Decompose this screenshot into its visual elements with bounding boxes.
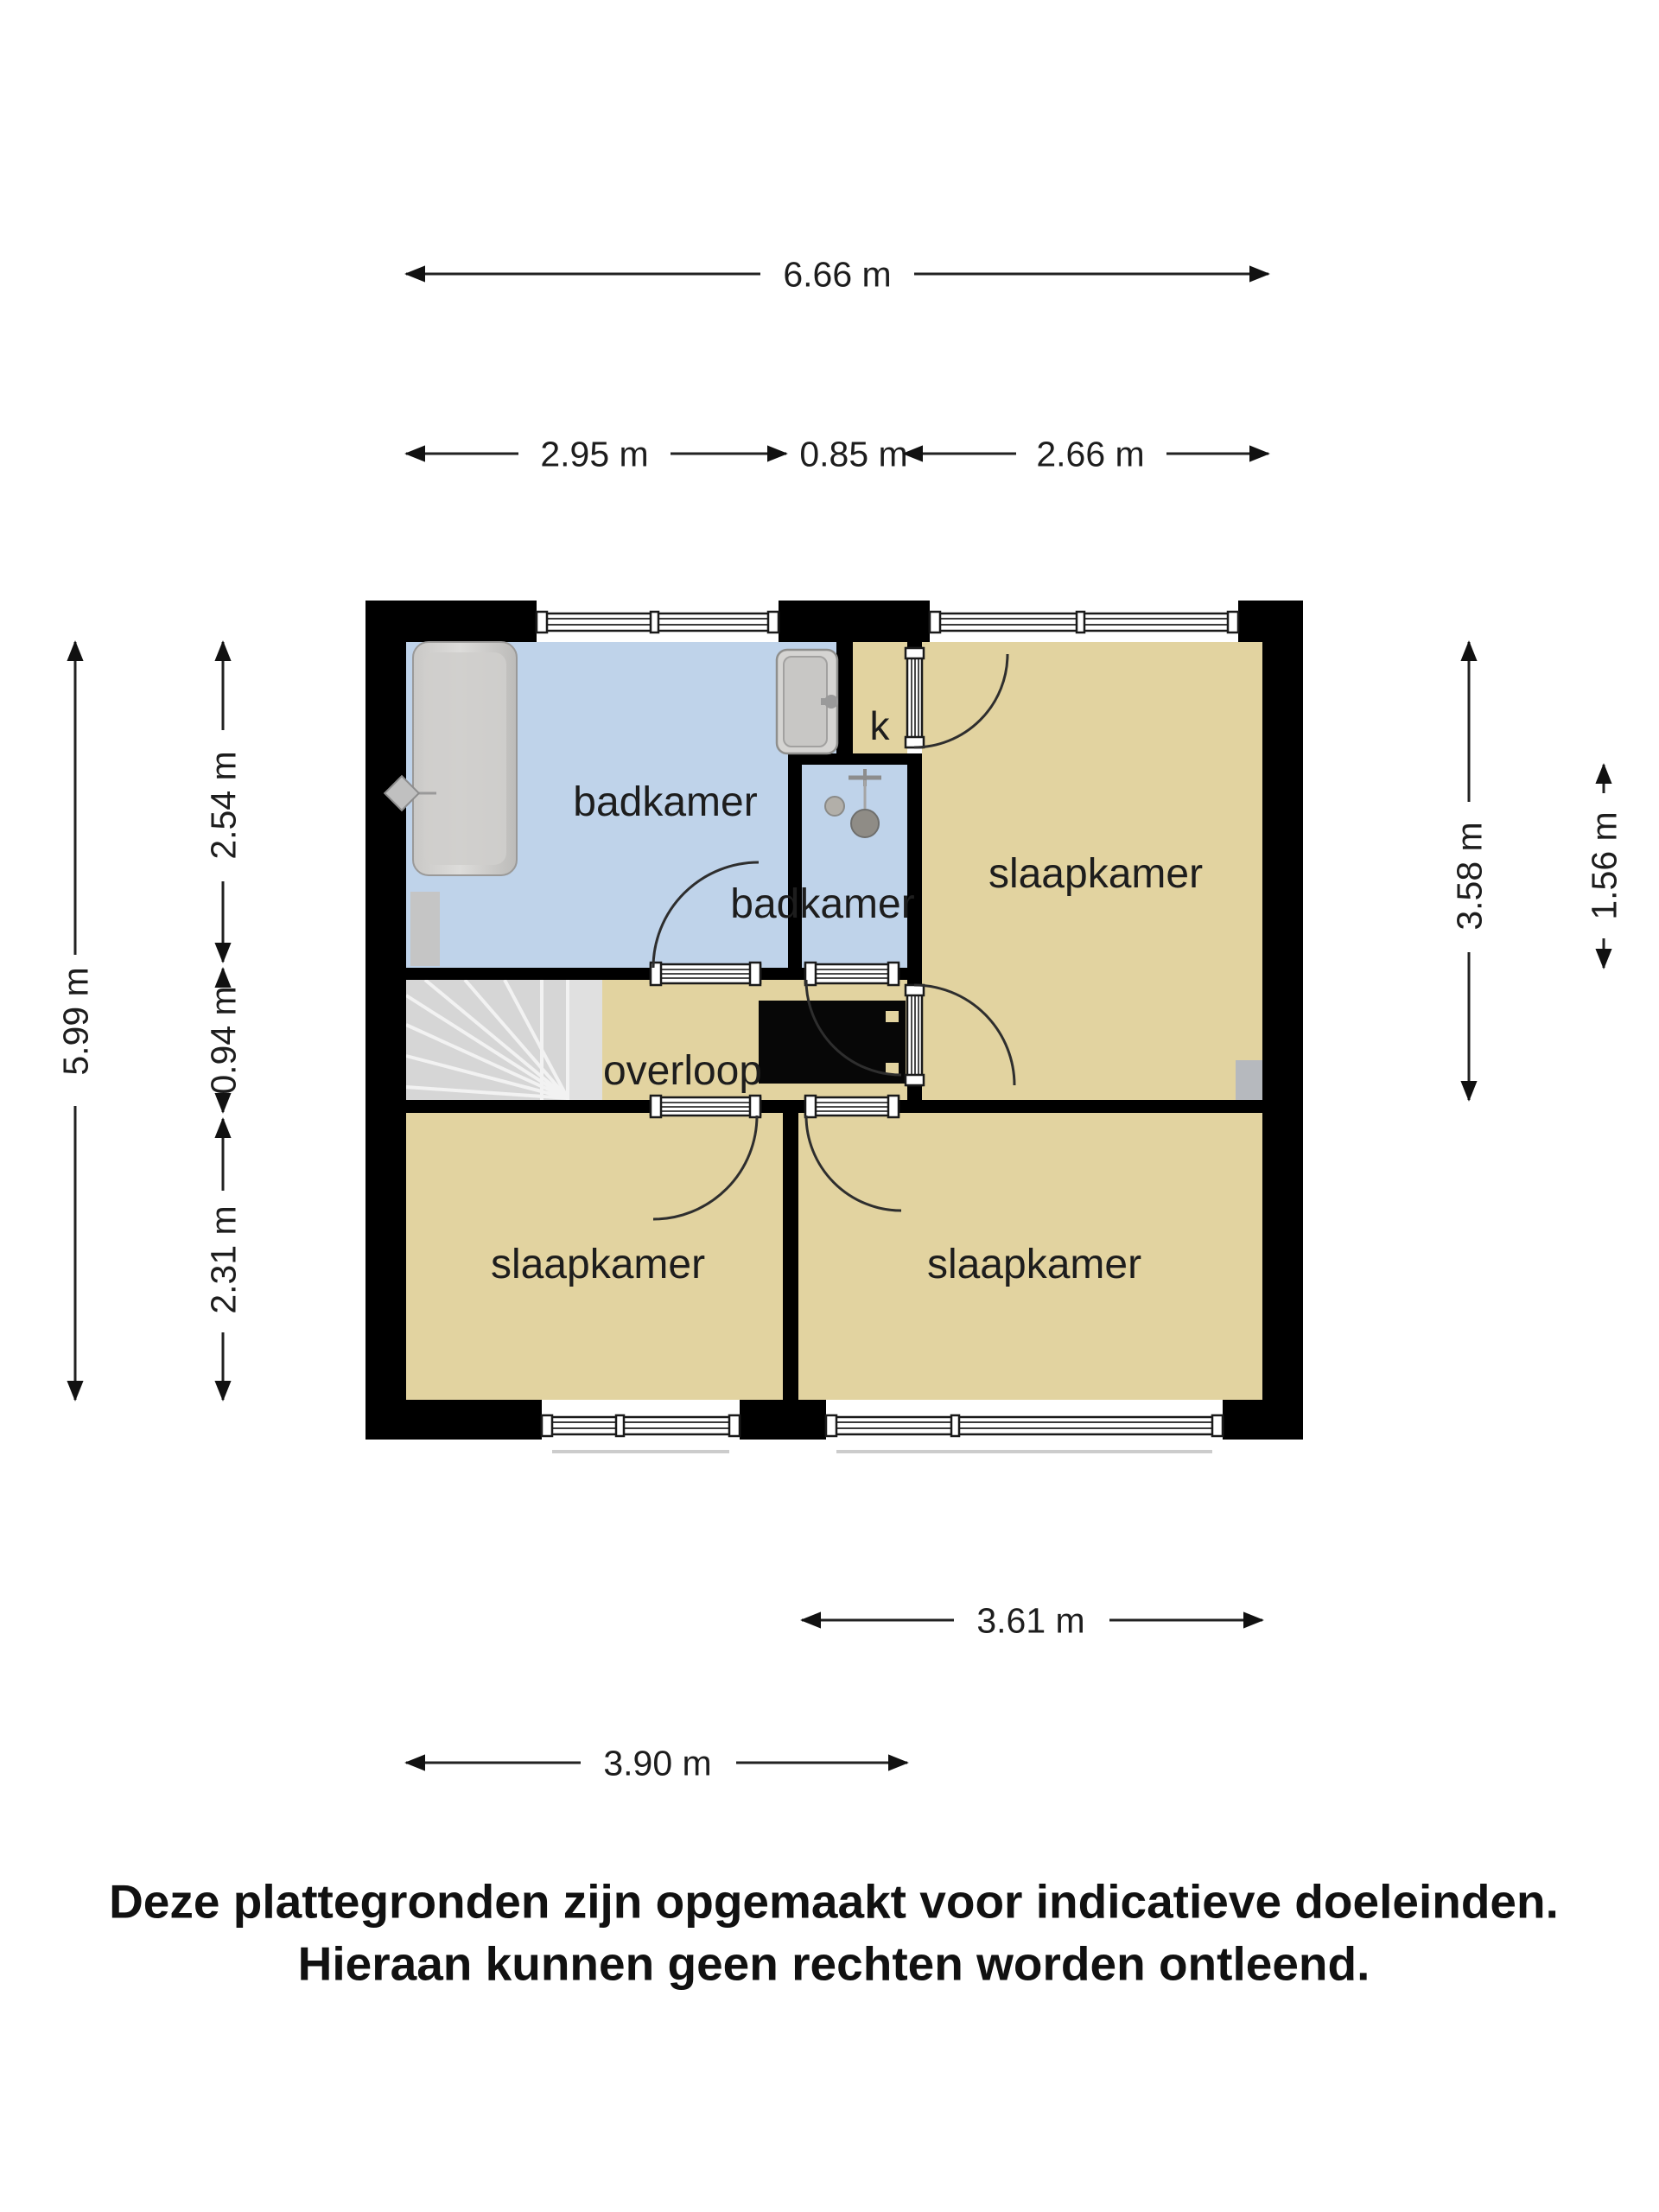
dim-left-top: 2.54 m: [203, 751, 243, 859]
dim-left-mid: 0.94 m: [203, 986, 243, 1094]
disclaimer: Deze plattegronden zijn opgemaakt voor i…: [109, 1874, 1559, 1990]
dim-top-left: 2.95 m: [540, 434, 648, 474]
floorplan-page: badkamer k slaapkamer badkamer overloop …: [0, 0, 1659, 2212]
room-label-closet: k: [870, 703, 891, 748]
dimension-top-total: 6.66 m: [406, 254, 1268, 294]
disclaimer-line-2: Hieraan kunnen geen rechten worden ontle…: [298, 1936, 1370, 1990]
door-slaapkamer-tr: [906, 985, 924, 1085]
wall-top-right: [1238, 601, 1303, 642]
washbasin-icon: [777, 650, 838, 753]
dim-bottom-upper: 3.61 m: [976, 1600, 1084, 1640]
dimension-right-column: 3.58 m 1.56 m: [1449, 642, 1624, 1100]
door-badkamer-small: [805, 963, 899, 985]
dim-left-bottom: 2.31 m: [203, 1205, 243, 1313]
wall-left: [365, 601, 406, 1440]
stairwell-void: [759, 1001, 906, 1084]
window-bottom-right: [826, 1415, 1223, 1452]
dimension-bottom-row: 3.61 m 3.90 m: [406, 1600, 1262, 1783]
wall-top-middle: [779, 601, 930, 642]
dim-right-short: 1.56 m: [1584, 811, 1624, 919]
dim-top-right: 2.66 m: [1036, 434, 1144, 474]
dim-top-mid: 0.85 m: [799, 434, 907, 474]
bathtub-icon: [413, 642, 517, 875]
window-top-badkamer: [537, 612, 779, 632]
wall-bottom-left: [365, 1400, 542, 1440]
window-bottom-left: [542, 1415, 740, 1452]
room-label-overloop: overloop: [603, 1048, 762, 1094]
dim-right-tall: 3.58 m: [1449, 822, 1489, 930]
dimension-left-total: 5.99 m: [55, 642, 95, 1400]
wall-right: [1262, 601, 1303, 1440]
door-badkamer: [651, 963, 760, 985]
floorplan-svg: badkamer k slaapkamer badkamer overloop …: [0, 0, 1659, 2212]
dimension-left-column: 2.54 m 0.94 m 2.31 m: [203, 642, 243, 1400]
dim-top-total: 6.66 m: [783, 254, 891, 294]
window-top-slaapkamer: [930, 612, 1238, 632]
disclaimer-line-1: Deze plattegronden zijn opgemaakt voor i…: [109, 1874, 1559, 1928]
dim-bottom-lower: 3.90 m: [603, 1743, 711, 1783]
door-slaapkamer-bl: [651, 1096, 760, 1117]
wall-top-left: [365, 601, 537, 642]
radiator-slaapkamer-tr: [1236, 1060, 1262, 1101]
door-slaapkamer-br: [805, 1096, 899, 1117]
wall-bottom-middle: [740, 1400, 826, 1440]
dimension-top-row: 2.95 m 0.85 m 2.66 m: [406, 434, 1268, 474]
dim-left-total: 5.99 m: [55, 967, 95, 1075]
room-label-slaapkamer-bl: slaapkamer: [491, 1242, 705, 1287]
room-label-badkamer-small: badkamer: [730, 881, 914, 927]
radiator-badkamer: [410, 892, 440, 966]
room-label-slaapkamer-br: slaapkamer: [927, 1242, 1141, 1287]
room-label-badkamer-main: badkamer: [573, 779, 757, 825]
room-label-slaapkamer-tr: slaapkamer: [988, 851, 1203, 897]
door-closet-k: [906, 648, 924, 747]
room-badkamer-small: [802, 765, 907, 968]
wall-bottom-right: [1223, 1400, 1303, 1440]
stairs-icon: [406, 980, 602, 1100]
